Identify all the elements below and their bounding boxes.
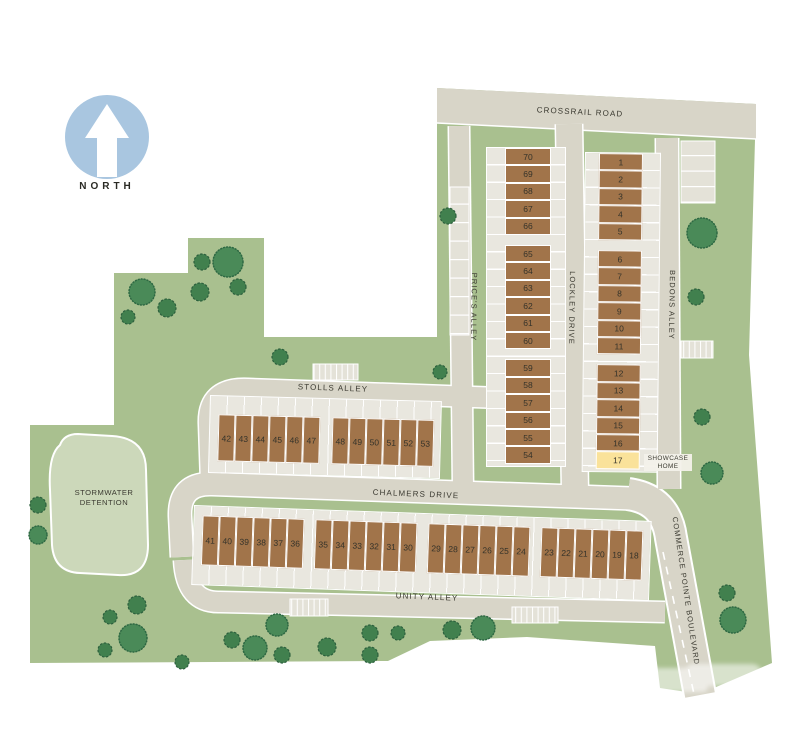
lot: 55 bbox=[505, 429, 551, 446]
tree-icon bbox=[471, 616, 495, 640]
lockley-drive-label: LOCKLEY DRIVE bbox=[567, 271, 577, 345]
lot: 26 bbox=[478, 525, 497, 576]
showcase-home-label: SHOWCASE HOME bbox=[644, 454, 692, 471]
tree-icon bbox=[694, 409, 710, 425]
lot-group: 414039383736 bbox=[201, 515, 305, 569]
lot: 20 bbox=[591, 529, 610, 580]
lot: 61 bbox=[505, 315, 551, 332]
north-label: NORTH bbox=[67, 181, 147, 192]
lot: 41 bbox=[201, 515, 220, 566]
tree-icon bbox=[194, 254, 210, 270]
lot: 46 bbox=[285, 416, 303, 463]
tree-icon bbox=[224, 632, 240, 648]
lot: 22 bbox=[557, 528, 576, 579]
lot: 16 bbox=[596, 434, 640, 452]
lot: 11 bbox=[597, 337, 641, 355]
lot: 59 bbox=[505, 359, 551, 376]
tree-icon bbox=[243, 636, 267, 660]
tree-icon bbox=[687, 218, 717, 248]
lot: 2 bbox=[599, 171, 643, 189]
lot: 57 bbox=[505, 394, 551, 411]
lot: 65 bbox=[505, 245, 551, 262]
lot: 44 bbox=[251, 415, 269, 462]
lot-group: 353433323130 bbox=[314, 519, 418, 573]
lot: 19 bbox=[608, 530, 627, 581]
lot: 25 bbox=[495, 526, 514, 577]
north-arrow-icon bbox=[65, 95, 149, 179]
tree-icon bbox=[230, 279, 246, 295]
lot-group: 292827262524 bbox=[427, 523, 531, 577]
lot: 43 bbox=[234, 415, 252, 462]
lot: 64 bbox=[505, 262, 551, 279]
lot: 31 bbox=[382, 522, 401, 573]
lot-group: 424344454647 bbox=[217, 414, 320, 464]
lot: 52 bbox=[399, 419, 417, 466]
tree-icon bbox=[720, 607, 746, 633]
showcase-home-lot: 17 bbox=[596, 452, 640, 470]
lot: 32 bbox=[365, 521, 384, 572]
lot: 36 bbox=[286, 518, 305, 569]
lot: 68 bbox=[505, 183, 551, 200]
tree-icon bbox=[272, 349, 288, 365]
lot: 60 bbox=[505, 332, 551, 349]
lot-group: 656463626160 bbox=[505, 245, 551, 349]
stormwater-detention-label: STORMWATER DETENTION bbox=[52, 488, 156, 507]
lot: 27 bbox=[461, 524, 480, 575]
site-plan: NORTH 7069686766 656463626160 5958575655… bbox=[0, 0, 789, 750]
lot: 8 bbox=[597, 285, 641, 303]
lot: 24 bbox=[512, 526, 531, 577]
tree-icon bbox=[318, 638, 336, 656]
lot: 58 bbox=[505, 377, 551, 394]
tree-icon bbox=[158, 299, 176, 317]
parking-strip bbox=[681, 141, 715, 203]
lot: 56 bbox=[505, 412, 551, 429]
tree-icon bbox=[274, 647, 290, 663]
lot-group: 7069686766 bbox=[505, 148, 551, 235]
lot-group: 484950515253 bbox=[331, 417, 434, 467]
lot: 21 bbox=[574, 528, 593, 579]
lot: 7 bbox=[598, 268, 642, 286]
tree-icon bbox=[443, 621, 461, 639]
tree-icon bbox=[391, 626, 405, 640]
tree-icon bbox=[266, 614, 288, 636]
tree-icon bbox=[688, 289, 704, 305]
tree-icon bbox=[433, 365, 447, 379]
lot: 9 bbox=[597, 302, 641, 320]
lot: 6 bbox=[598, 250, 642, 268]
lot: 37 bbox=[269, 518, 288, 569]
tree-icon bbox=[440, 208, 456, 224]
bedons-column: 12345 67891011 1213141516 17 bbox=[582, 152, 661, 473]
tree-icon bbox=[191, 283, 209, 301]
lot: 10 bbox=[597, 320, 641, 338]
lot: 1 bbox=[599, 153, 643, 171]
lot: 47 bbox=[302, 416, 320, 463]
unity-row: 414039383736 353433323130 292827262524 2… bbox=[191, 505, 652, 601]
lot: 4 bbox=[598, 205, 642, 223]
bedons-alley-label: BEDONS ALLEY bbox=[667, 270, 677, 340]
lot: 18 bbox=[625, 530, 644, 581]
parking-strip bbox=[512, 607, 558, 623]
stolls-row: 424344454647 484950515253 bbox=[208, 395, 442, 479]
lot: 29 bbox=[427, 523, 446, 574]
lot: 45 bbox=[268, 416, 286, 463]
lot: 63 bbox=[505, 280, 551, 297]
lot: 69 bbox=[505, 165, 551, 182]
parking-strip bbox=[681, 341, 713, 358]
tree-icon bbox=[128, 596, 146, 614]
lot: 15 bbox=[596, 417, 640, 435]
lot: 23 bbox=[540, 527, 559, 578]
lot: 30 bbox=[399, 522, 418, 573]
tree-icon bbox=[119, 624, 147, 652]
lot: 14 bbox=[596, 399, 640, 417]
lot-group: 595857565554 bbox=[505, 359, 551, 463]
tree-icon bbox=[121, 310, 135, 324]
lot-group: 12345 bbox=[598, 153, 643, 240]
parking-strip bbox=[313, 364, 358, 380]
lot: 67 bbox=[505, 200, 551, 217]
lot: 66 bbox=[505, 218, 551, 235]
tree-icon bbox=[129, 279, 155, 305]
lot: 70 bbox=[505, 148, 551, 165]
lot: 13 bbox=[596, 382, 640, 400]
tree-icon bbox=[701, 462, 723, 484]
lot: 39 bbox=[235, 516, 254, 567]
parking-strip bbox=[290, 599, 328, 616]
lot: 51 bbox=[382, 419, 400, 466]
tree-icon bbox=[719, 585, 735, 601]
lot: 5 bbox=[598, 223, 642, 241]
parking-strip bbox=[450, 187, 469, 335]
tree-icon bbox=[29, 526, 47, 544]
lot: 40 bbox=[218, 516, 237, 567]
lot: 53 bbox=[416, 419, 434, 466]
tree-icon bbox=[362, 625, 378, 641]
lot: 49 bbox=[348, 418, 366, 465]
tree-icon bbox=[213, 247, 243, 277]
lot: 48 bbox=[331, 417, 349, 464]
lot: 35 bbox=[314, 519, 333, 570]
lot: 28 bbox=[444, 524, 463, 575]
prices-alley-label: PRICE'S ALLEY bbox=[469, 273, 479, 342]
tree-icon bbox=[98, 643, 112, 657]
tree-icon bbox=[362, 647, 378, 663]
lot: 42 bbox=[217, 414, 235, 461]
lot: 54 bbox=[505, 446, 551, 463]
tree-icon bbox=[175, 655, 189, 669]
lot: 38 bbox=[252, 517, 271, 568]
lot: 33 bbox=[348, 520, 367, 571]
lot-group: 232221201918 bbox=[540, 527, 644, 581]
lot: 62 bbox=[505, 297, 551, 314]
lot: 3 bbox=[598, 188, 642, 206]
lot: 50 bbox=[365, 418, 383, 465]
lot-group: 1213141516 bbox=[596, 365, 641, 452]
lot: 34 bbox=[331, 520, 350, 571]
lot: 12 bbox=[597, 365, 641, 383]
tree-icon bbox=[30, 497, 46, 513]
lot-group: 67891011 bbox=[597, 250, 642, 355]
tree-icon bbox=[103, 610, 117, 624]
prices-column: 7069686766 656463626160 595857565554 bbox=[486, 147, 566, 467]
